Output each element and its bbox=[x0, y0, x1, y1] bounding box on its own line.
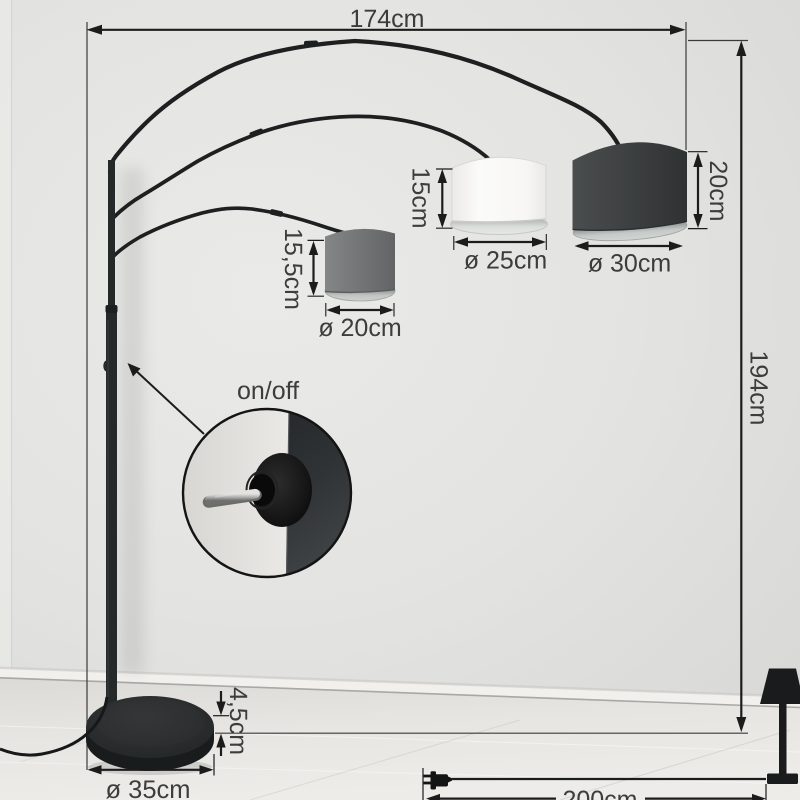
svg-text:ø 20cm: ø 20cm bbox=[318, 314, 401, 342]
svg-text:20cm: 20cm bbox=[704, 160, 732, 221]
svg-text:15cm: 15cm bbox=[407, 167, 435, 228]
svg-text:174cm: 174cm bbox=[349, 5, 424, 33]
svg-text:194cm: 194cm bbox=[745, 350, 773, 425]
svg-text:ø 25cm: ø 25cm bbox=[464, 247, 547, 275]
svg-text:ø 35cm: ø 35cm bbox=[105, 776, 190, 800]
svg-text:ø 30cm: ø 30cm bbox=[588, 250, 671, 278]
svg-text:on/off: on/off bbox=[237, 377, 299, 405]
svg-text:200cm: 200cm bbox=[562, 786, 637, 800]
svg-text:15,5cm: 15,5cm bbox=[279, 228, 307, 310]
svg-text:4,5cm: 4,5cm bbox=[224, 687, 252, 755]
